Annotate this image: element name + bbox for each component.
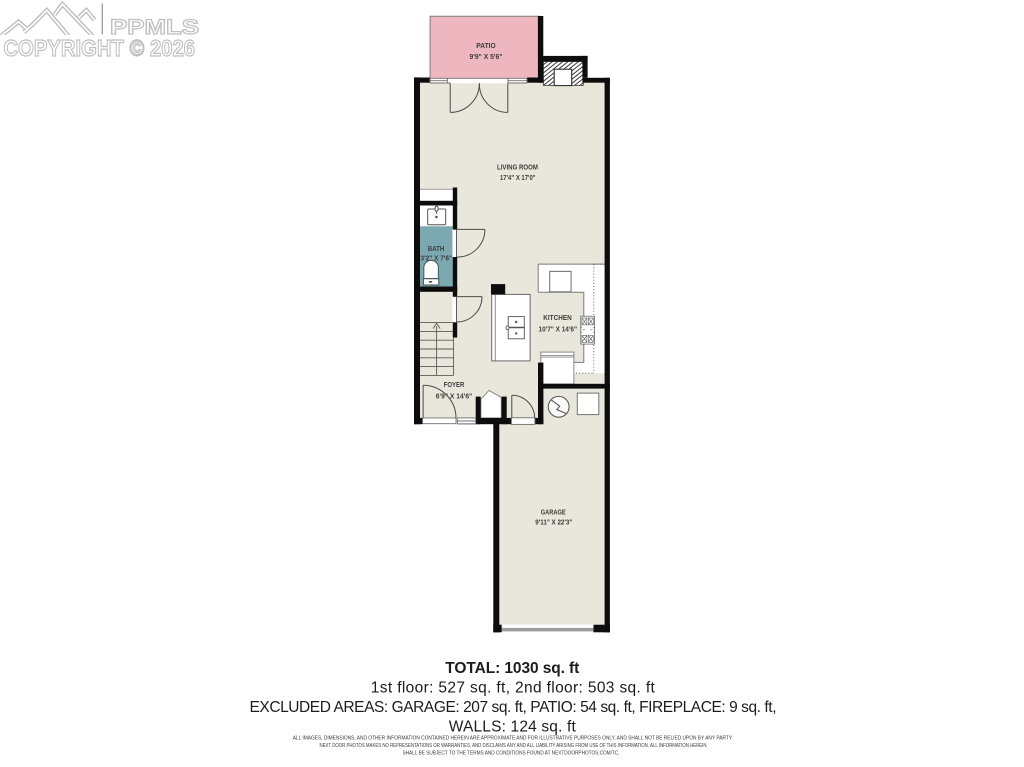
svg-text:9'11" X 22'3": 9'11" X 22'3"	[535, 519, 572, 526]
svg-text:BATH: BATH	[428, 246, 445, 253]
svg-text:PATIO: PATIO	[476, 43, 496, 50]
svg-text:LIVING ROOM: LIVING ROOM	[497, 165, 538, 172]
svg-text:TOTAL: 1030 sq. ft: TOTAL: 1030 sq. ft	[445, 660, 579, 677]
svg-text:9'9" X 5'6": 9'9" X 5'6"	[470, 54, 503, 61]
svg-text:GARAGE: GARAGE	[541, 510, 566, 517]
svg-text:10'7" X 14'6": 10'7" X 14'6"	[539, 327, 578, 334]
svg-text:1st floor: 527 sq. ft, 2nd flo: 1st floor: 527 sq. ft, 2nd floor: 503 sq…	[371, 680, 656, 697]
svg-text:NEXT DOOR PHOTOS MAKES NO REPR: NEXT DOOR PHOTOS MAKES NO REPRESENTATION…	[320, 743, 707, 749]
svg-text:KITCHEN: KITCHEN	[543, 315, 572, 322]
svg-text:WALLS: 124 sq. ft: WALLS: 124 sq. ft	[449, 719, 577, 736]
svg-text:17'4" X 17'0": 17'4" X 17'0"	[500, 175, 536, 182]
svg-text:ALL IMAGES, DIMENSIONS, AND OT: ALL IMAGES, DIMENSIONS, AND OTHER INFORM…	[293, 736, 733, 742]
svg-text:COPYRIGHT © 2026: COPYRIGHT © 2026	[4, 35, 196, 61]
svg-text:SHALL BE SUBJECT TO THE TERMS: SHALL BE SUBJECT TO THE TERMS AND CONDIT…	[403, 751, 620, 757]
svg-text:3'2" X 7'6": 3'2" X 7'6"	[421, 256, 453, 263]
svg-text:6'9" X 14'6": 6'9" X 14'6"	[436, 394, 473, 401]
svg-text:EXCLUDED AREAS: GARAGE: 207 sq: EXCLUDED AREAS: GARAGE: 207 sq. ft, PATI…	[250, 699, 777, 716]
svg-text:FOYER: FOYER	[444, 382, 465, 389]
